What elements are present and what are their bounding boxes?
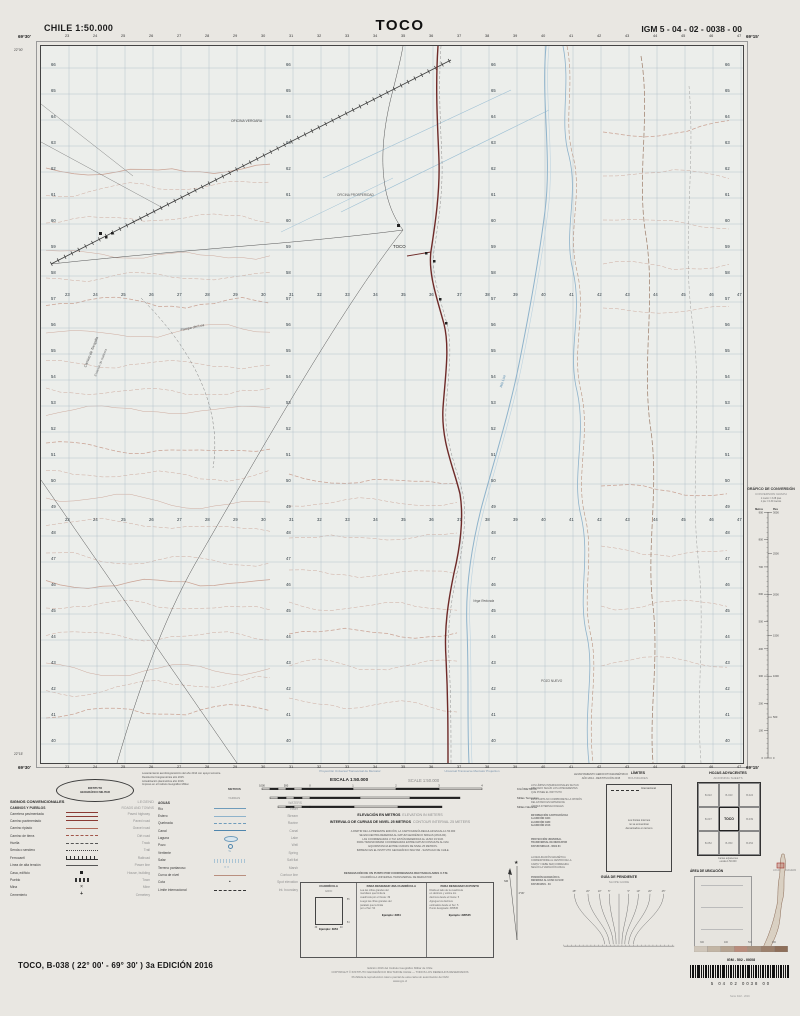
barcode-bar <box>692 965 694 978</box>
tint-segment <box>748 946 761 952</box>
coverage-line <box>701 929 743 930</box>
grid-easting-label: 37 <box>457 517 462 522</box>
desert-track <box>641 56 655 763</box>
magnetic-north-line <box>509 870 517 940</box>
gridbox-header-1: DESIGNACIÓN DE UN PUNTO POR COORDENADAS … <box>300 871 492 875</box>
legend-item-label-en: Salt flat <box>248 858 298 862</box>
edge-easting-label: 45 <box>681 34 685 38</box>
legend-symbol-gravel-icon <box>66 828 98 834</box>
conversion-ruler: 0100200300400500600700800900050010001500… <box>752 506 792 768</box>
slope-guide-title: GUÍA DE PENDIENTE <box>556 875 682 879</box>
place-label: Vega Redonda <box>473 599 494 603</box>
grid-northing-label: 50 <box>286 478 291 483</box>
legend-item-label-en: Paved road <box>100 819 150 823</box>
legend-symbol-spring-icon <box>214 851 246 856</box>
grid-northing-label: 51 <box>491 452 496 457</box>
tint-segment <box>707 946 720 952</box>
text-line: www.igm.cl <box>215 979 585 983</box>
grid-easting-label: 42 <box>597 292 602 297</box>
ruler-feet-label: 1500 <box>773 633 779 637</box>
grid-easting-label: 36 <box>429 292 434 297</box>
barcode-bar <box>778 965 779 978</box>
buildings <box>99 224 448 325</box>
grid-northing-label: 58 <box>725 270 730 275</box>
grid-northing-label: 64 <box>51 114 56 119</box>
legend-item-label-es: Ferrocarril <box>10 856 64 860</box>
secondary-road <box>117 230 403 763</box>
grid-easting-label: 27 <box>177 292 182 297</box>
slope-degree-label: 45° <box>662 890 666 893</box>
declination-angle-label: 4°30' <box>519 891 525 895</box>
grid-northing-label: 45 <box>725 608 730 613</box>
edge-easting-label: 42 <box>597 765 601 769</box>
grid-designation-box: CUADRÍCULA GRID 39 40 54 55 Ejemplo: 395… <box>300 882 494 958</box>
grid-northing-label: 56 <box>286 322 291 327</box>
contour-line <box>46 663 270 676</box>
legend-symbol-cem-icon <box>66 893 98 898</box>
legend-item-label-es: Pueblo <box>10 878 64 882</box>
scale-bar-segment <box>396 788 439 790</box>
slope-guide-subtitle: SLOPE GUIDE <box>556 880 682 884</box>
grid-northing-label: 47 <box>725 556 730 561</box>
scale-bar-tick-label: 2 <box>395 783 397 787</box>
legend-item-label-es: Senda o sendero <box>10 848 64 852</box>
grid-easting-label: 24 <box>93 292 98 297</box>
text-line: QUE POSEE EL INSTITUTO <box>531 791 603 794</box>
legend-symbol-rail-icon <box>66 856 98 860</box>
legend-title-es: SIGNOS CONVENCIONALES <box>10 799 64 804</box>
grid-northing-label: 45 <box>51 608 56 613</box>
boundary-sample-line <box>611 790 639 791</box>
scale-bar-segment <box>310 788 353 790</box>
true-north-star-icon: ★ <box>514 860 519 866</box>
grid-square-label: 39 <box>315 926 318 929</box>
grid-northing-label: 50 <box>491 478 496 483</box>
edge-easting-label: 25 <box>121 34 125 38</box>
adjoining-sheets-grid: B-022B-023B-024B-037TOCOB-039B-052B-053B… <box>697 782 761 856</box>
ruler-meters-label: 800 <box>759 538 764 542</box>
barcode-bar <box>708 965 709 978</box>
text-line: 3a EDICIÓN 2016 <box>531 824 601 827</box>
grid-easting-label: 42 <box>597 517 602 522</box>
elevation-note: ELEVACIÓN EN METROS ELEVATION IN METERS <box>260 813 540 817</box>
adjoining-sheet-cell: B-052 <box>698 831 719 855</box>
legend-item-label-en: Spot elevation <box>248 880 298 884</box>
elevation-note-es: ELEVACIÓN EN METROS <box>357 813 400 817</box>
legend-symbol-dirt-icon <box>66 835 98 841</box>
barcode-bar <box>712 965 714 978</box>
grid-northing-label: 43 <box>51 660 56 665</box>
grid-northing-label: 51 <box>51 452 56 457</box>
grid-northing-label: 59 <box>491 244 496 249</box>
grid-northing-label: 55 <box>725 348 730 353</box>
legend-subheader: AGUASWATERS <box>158 801 302 805</box>
coverage-line <box>701 907 743 908</box>
adjoining-sheet-cell: B-022 <box>698 783 719 807</box>
edge-easting-label: 46 <box>709 34 713 38</box>
scale-bar-tick-label: 1 <box>352 783 354 787</box>
legend-item-label-en: Well <box>248 843 298 847</box>
map-frame: OFICINA VERGARAOFICINA PROSPERIDADCamino… <box>40 45 744 764</box>
legend-row: Línea de alta tensiónPower line <box>10 863 154 870</box>
grid-square-label: 54 <box>347 921 350 924</box>
scale-label-en: SCALE 1:50.000 <box>408 778 439 783</box>
trail-dashed <box>688 86 701 763</box>
ruler-meters-label: 0 <box>762 756 764 760</box>
legend-item-label-en: Railroad <box>100 856 150 860</box>
contour-line <box>46 272 270 281</box>
barcode-bar <box>745 965 746 978</box>
projection-info: PROYECCIÓN UNIVERSALTRANSVERSAL DE MERCA… <box>531 838 601 848</box>
ruler-feet-label: 2000 <box>773 592 779 596</box>
contour-line <box>601 546 727 557</box>
legend-item-label-en: Int. boundary <box>248 888 298 892</box>
grid-easting-label: 44 <box>653 292 658 297</box>
grid-square-diagram: 39 40 54 55 <box>315 897 343 925</box>
grid-easting-label: 43 <box>625 292 630 297</box>
corner-lat-bottom: 22°15' <box>14 752 23 756</box>
legend-row: VertienteSpring <box>158 851 302 858</box>
grid-square-label: 55 <box>347 898 350 901</box>
edge-easting-label: 34 <box>373 34 377 38</box>
grid-northing-label: 53 <box>51 400 56 405</box>
legend-item-label-es: Línea de alta tensión <box>10 863 64 867</box>
grid-northing-label: 48 <box>491 530 496 535</box>
scale-bar-tick-label: 500 <box>284 783 289 787</box>
legend-col-header-en: ROADS AND TOWNS <box>122 806 155 810</box>
scale-bar-segment <box>353 788 396 790</box>
grid-easting-label: 38 <box>485 292 490 297</box>
barcode-bar <box>760 965 761 978</box>
grid-northing-label: 45 <box>491 608 496 613</box>
barcode <box>688 965 794 979</box>
legend-item-label-en: House, building <box>100 871 150 875</box>
grid-northing-label: 47 <box>491 556 496 561</box>
grid-northing-label: 41 <box>725 712 730 717</box>
contour-line <box>46 360 270 369</box>
contour-line <box>289 628 457 638</box>
barcode-bar <box>717 965 719 978</box>
limits-box: Internacional Los límites internosno se … <box>606 784 672 872</box>
edge-easting-label: 27 <box>177 34 181 38</box>
grid-northing-label: 53 <box>725 400 730 405</box>
slope-curve <box>588 894 609 944</box>
text-line: SEGÚN LA VARIACIÓN ANUAL <box>531 866 601 869</box>
slope-degree-label: 10° <box>598 890 602 893</box>
grid-easting-label: 46 <box>709 292 714 297</box>
legend-symbol-lake-icon <box>214 836 246 841</box>
magnetic-north-label: NM <box>504 879 508 883</box>
legend-row: HuellaTrack <box>10 841 154 848</box>
legend-item-label-en: Marsh <box>248 866 298 870</box>
grid-northing-label: 52 <box>725 426 730 431</box>
barcode-bar <box>730 965 732 978</box>
grid-northing-label: 44 <box>286 634 291 639</box>
barcode-bar <box>697 965 700 978</box>
ruler-feet-label: 500 <box>773 715 778 719</box>
place-label: TOCO <box>393 244 406 249</box>
scale-bar-tick-label: 1000 <box>259 783 265 787</box>
edge-easting-label: 26 <box>149 34 153 38</box>
main-road-red <box>430 46 461 763</box>
ruler-meters-label: 600 <box>759 592 764 596</box>
gridbox-diagram-column: CUADRÍCULA GRID 39 40 54 55 Ejemplo: 395… <box>301 883 356 957</box>
ruler-feet-label: 2500 <box>773 552 779 556</box>
grid-northing-label: 59 <box>725 244 730 249</box>
slope-degree-label: 5° <box>627 890 629 893</box>
slope-curve <box>622 894 629 944</box>
grid-northing-label: 64 <box>286 114 291 119</box>
barcode-bar <box>742 965 744 978</box>
grid-easting-label: 28 <box>205 517 210 522</box>
slope-degree-label: 20° <box>586 890 590 893</box>
edge-easting-label: 42 <box>597 34 601 38</box>
barcode-bar <box>720 965 721 978</box>
legend-item-label-en: Mine <box>100 885 150 889</box>
grid-northing-label: 63 <box>286 140 291 145</box>
grid-northing-label: 63 <box>51 140 56 145</box>
barcode-bar <box>767 965 769 978</box>
edge-easting-label: 24 <box>93 34 97 38</box>
grid-northing-label: 60 <box>51 218 56 223</box>
legend-row: Camino pavimentadoPaved road <box>10 819 154 826</box>
grid-easting-label: 24 <box>93 517 98 522</box>
contour-line <box>46 632 270 641</box>
legend-column-roads: SIGNOS CONVENCIONALESLEGENDCAMINOS Y PUE… <box>10 799 154 900</box>
ruler-meters-label: 500 <box>759 620 764 624</box>
edge-easting-label: 40 <box>541 765 545 769</box>
grid-northing-label: 60 <box>725 218 730 223</box>
declination-note: LA DECLINACIÓN MAGNÉTICACORRESPONDE AL C… <box>531 856 601 870</box>
grid-northing-label: 59 <box>286 244 291 249</box>
legend-row: Límite internacionalInt. boundary <box>158 888 302 895</box>
series-note: Serie IGM - 2016 <box>730 995 750 998</box>
contour-line <box>603 306 729 313</box>
grid-northing-label: 50 <box>725 478 730 483</box>
coverage-box <box>694 876 752 948</box>
scale-bar-segment <box>302 806 310 808</box>
grid-northing-label: 57 <box>286 296 291 301</box>
ruler-feet-label: 0 <box>773 756 775 760</box>
barcode-bar <box>780 965 782 978</box>
river-east <box>563 46 590 763</box>
grid-northing-label: 54 <box>286 374 291 379</box>
legend-item-label-en: Contour line <box>248 873 298 877</box>
barcode-bar <box>690 965 691 978</box>
edge-easting-label: 47 <box>737 765 741 769</box>
adjoining-sheet-cell: B-039 <box>739 807 760 831</box>
footer-copyright: Edición 2016 del Instituto Geográfico Mi… <box>215 966 585 984</box>
adjoining-sheet-cell: B-023 <box>719 783 740 807</box>
grid-northing-label: 53 <box>286 400 291 405</box>
legend-item-label-en: Stream <box>248 814 298 818</box>
legend-item-label-es: Terreno pantanoso <box>158 866 212 870</box>
tint-bar-label: 600 <box>772 941 776 944</box>
barcode-bar <box>703 965 704 978</box>
edge-easting-label: 23 <box>65 34 69 38</box>
limits-note-1: LOS LÍMITES INTERNACIONALES SE HANDIBUJA… <box>531 784 603 794</box>
legend-row: Senda o senderoTrail <box>10 848 154 855</box>
legend-item-label-en: Paved highway <box>100 812 150 816</box>
sheet-location-marker <box>777 863 784 868</box>
scale-bar-tick-label: 0 <box>309 783 311 787</box>
grid-easting-label: 27 <box>177 517 182 522</box>
grid-easting-label: 46 <box>709 517 714 522</box>
edge-easting-label: 28 <box>205 765 209 769</box>
datum-notes: A PARTIR DE LA PRESENTE EDICIÓN, LA CART… <box>308 830 498 853</box>
contour-line <box>289 602 457 611</box>
grid-northing-label: 61 <box>51 192 56 197</box>
scale-bar-segment <box>410 797 460 799</box>
grid-easting-label: 37 <box>457 292 462 297</box>
slope-curve <box>574 894 604 944</box>
grid-northing-label: 64 <box>725 114 730 119</box>
projection-label-en: Universal Transverse Mercator Projection <box>412 769 532 773</box>
contour-line <box>601 600 727 610</box>
utm-grid-layer <box>41 46 743 763</box>
grid-easting-label: 40 <box>541 517 546 522</box>
grid-northing-label: 51 <box>286 452 291 457</box>
edge-easting-label: 38 <box>485 34 489 38</box>
contour-interval-en: CONTOUR INTERVAL 25 METERS <box>413 820 470 824</box>
legend-symbol-stream-icon <box>214 816 246 822</box>
edge-easting-label: 44 <box>653 765 657 769</box>
legend-row: SalarSalt flat <box>158 858 302 865</box>
ruler-meters-label: 700 <box>759 565 764 569</box>
edge-easting-label: 45 <box>681 765 685 769</box>
legend-item-label-es: Estero <box>158 814 212 818</box>
contour-line <box>289 698 457 712</box>
barcode-bar <box>762 965 764 978</box>
grid-easting-label: 31 <box>289 517 294 522</box>
contour-line <box>289 498 457 507</box>
contour-line <box>289 533 457 540</box>
grid-northing-label: 54 <box>51 374 56 379</box>
barcode-bar <box>701 965 702 978</box>
legend-symbol-town-icon <box>66 878 98 883</box>
legend-item-label-es: Mina <box>10 885 64 889</box>
grid-easting-label: 36 <box>429 517 434 522</box>
contour-line <box>46 182 270 197</box>
legend-item-label-en: Gravel road <box>100 826 150 830</box>
grid-easting-label: 23 <box>65 292 70 297</box>
grid-northing-label: 66 <box>286 62 291 67</box>
cartographic-info: INFORMACIÓN CARTOGRÁFICA1a EDICIÓN 19642… <box>531 814 601 828</box>
edge-easting-label: 23 <box>65 765 69 769</box>
elevation-tint-bar <box>694 946 788 952</box>
legend-symbol-spot-icon <box>214 880 246 885</box>
barcode-bar <box>735 965 736 978</box>
legend-item-label-es: Pozo <box>158 843 212 847</box>
projection-label-es: Proyección Universal Transversal de Merc… <box>290 769 410 773</box>
grid-northing-label: 44 <box>491 634 496 639</box>
grid-northing-label: 61 <box>491 192 496 197</box>
grid-easting-label: 35 <box>401 517 406 522</box>
adjoining-sheets-subtitle: ADJOINING SHEETS <box>690 776 766 780</box>
slope-curve <box>625 894 639 944</box>
grid-northing-label: 41 <box>491 712 496 717</box>
legend-item-label-en: Cemetery <box>100 893 150 897</box>
adjoining-sheet-cell: B-024 <box>739 783 760 807</box>
grid-easting-label: 39 <box>513 292 518 297</box>
grid-square-label: 40 <box>340 926 343 929</box>
grid-easting-label: 41 <box>569 517 574 522</box>
river-main <box>467 46 548 763</box>
grid-easting-label: 23 <box>65 517 70 522</box>
contour-line <box>46 214 270 223</box>
magnetic-north-arrow <box>508 868 512 875</box>
scale-bar-segment <box>278 788 286 790</box>
grid-northing-label: 40 <box>286 738 291 743</box>
grid-northing-label: 52 <box>51 426 56 431</box>
declination-diagram: ★ NM 4°30' <box>503 852 529 952</box>
grid-northing-label: 46 <box>286 582 291 587</box>
svg-text:Metros: Metros <box>755 508 764 511</box>
edge-easting-label: 43 <box>625 765 629 769</box>
grid-easting-label: 33 <box>345 517 350 522</box>
grid-northing-label: 62 <box>51 166 56 171</box>
grid-northing-label: 41 <box>51 712 56 717</box>
scale-bar-segment <box>398 806 442 808</box>
contour-line <box>603 261 729 269</box>
barcode-bar <box>783 965 784 978</box>
slope-degree-label: 20° <box>648 890 652 893</box>
edge-easting-label: 41 <box>569 34 573 38</box>
contour-line <box>603 170 729 179</box>
scale-bar-tick-label: 3 <box>438 783 440 787</box>
footer-sheet-title: TOCO, B-038 ( 22° 00' - 69° 30' ) 3a EDI… <box>18 961 213 970</box>
legend-col-header-es: AGUAS <box>158 801 170 805</box>
legend-header: SIGNOS CONVENCIONALESLEGEND <box>10 799 154 804</box>
grid-easting-label: 25 <box>121 292 126 297</box>
grid-easting-label: 33 <box>345 292 350 297</box>
ruler-meters-label: 200 <box>759 701 764 705</box>
map-sheet-page: CHILE 1:50.000 TOCO IGM 5 - 04 - 02 - 00… <box>0 0 800 1016</box>
ruler-meters-label: 100 <box>759 729 764 733</box>
text-line: por el Sur: 54 <box>360 907 422 911</box>
legend-row: Casa, edificioHouse, building <box>10 871 154 878</box>
legend-row: FerrocarrilRailroad <box>10 856 154 863</box>
secondary-road <box>383 46 403 230</box>
grid-easting-label: 28 <box>205 292 210 297</box>
corner-lon-tr: 69°15' <box>746 34 759 39</box>
gridbox-instructions-column-1: PARA DESIGNAR UNA CUADRÍCULA Lea las cif… <box>356 883 425 957</box>
grid-northing-label: 55 <box>286 348 291 353</box>
grid-northing-label: 58 <box>491 270 496 275</box>
grid-northing-label: 56 <box>51 322 56 327</box>
grid-northing-label: 49 <box>491 504 496 509</box>
ruler-meters-label: 300 <box>759 674 764 678</box>
grid-easting-label: 44 <box>653 517 658 522</box>
legend-item-label-en: Dirt road <box>100 834 150 838</box>
edge-easting-label: 31 <box>289 34 293 38</box>
gridbox-col3-example: Ejemplo: 395545 <box>430 913 490 917</box>
ruler-feet-label: 1000 <box>773 674 779 678</box>
legend-row: Terreno pantanosoMarsh <box>158 866 302 873</box>
edge-easting-label: 46 <box>709 765 713 769</box>
slope-curve <box>634 894 664 944</box>
legend-item-label-en: Spring <box>248 851 298 855</box>
corner-lat-top: 22°00' <box>14 48 23 52</box>
edge-easting-label: 30 <box>261 34 265 38</box>
barcode-bar <box>710 965 711 978</box>
grid-northing-label: 55 <box>51 348 56 353</box>
legend-symbol-mine-icon <box>66 885 98 890</box>
barcode-bar <box>695 965 696 978</box>
place-label: OFICINA VERGARA <box>231 119 262 123</box>
contour-line <box>46 388 270 395</box>
legend-symbol-dash-icon <box>66 843 98 849</box>
